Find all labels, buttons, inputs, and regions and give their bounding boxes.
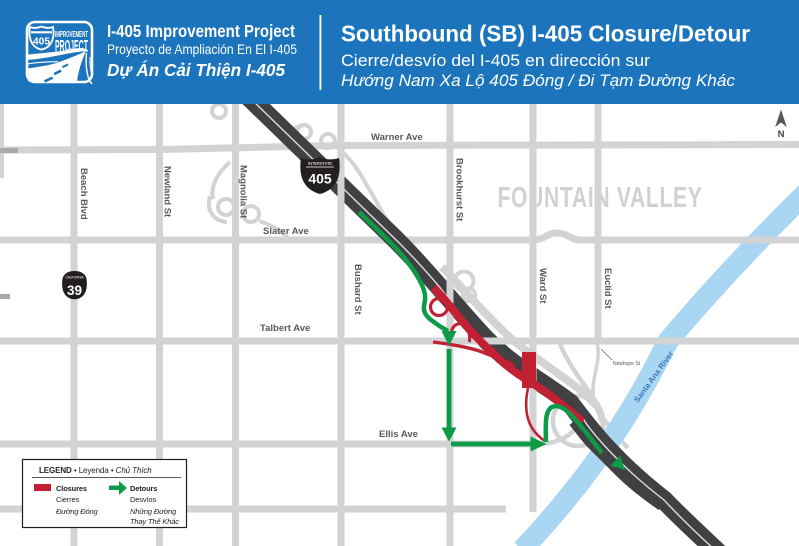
svg-text:Bushard St: Bushard St bbox=[352, 264, 363, 316]
svg-text:LEGEND • Leyenda • Chủ Thích: LEGEND • Leyenda • Chủ Thích bbox=[39, 466, 152, 475]
svg-text:Ellis Ave: Ellis Ave bbox=[379, 429, 418, 440]
svg-text:Newland St: Newland St bbox=[162, 166, 173, 218]
svg-text:Warner Ave: Warner Ave bbox=[371, 132, 423, 143]
svg-text:Ward St: Ward St bbox=[537, 268, 548, 304]
svg-text:Proyecto de Ampliación En El I: Proyecto de Ampliación En El I-405 bbox=[107, 41, 297, 57]
svg-text:Brookhurst St: Brookhurst St bbox=[454, 158, 465, 222]
svg-text:Closures: Closures bbox=[56, 484, 87, 493]
svg-text:Newhope St: Newhope St bbox=[613, 361, 640, 367]
svg-text:I-405 Improvement Project: I-405 Improvement Project bbox=[107, 21, 295, 41]
svg-text:Slater Ave: Slater Ave bbox=[263, 226, 309, 237]
svg-text:Dự Án Cải Thiện I-405: Dự Án Cải Thiện I-405 bbox=[107, 59, 285, 80]
svg-text:405: 405 bbox=[33, 36, 50, 48]
svg-text:Đường Đóng: Đường Đóng bbox=[56, 507, 99, 516]
svg-text:39: 39 bbox=[67, 283, 82, 298]
svg-text:Cierres: Cierres bbox=[56, 495, 80, 504]
svg-text:PROJECT: PROJECT bbox=[55, 38, 88, 56]
svg-text:Desvíos: Desvíos bbox=[130, 495, 156, 504]
svg-text:Những Đường: Những Đường bbox=[130, 507, 177, 516]
svg-text:Euclid St: Euclid St bbox=[602, 268, 613, 309]
svg-text:Southbound (SB) I-405 Closure/: Southbound (SB) I-405 Closure/Detour bbox=[341, 21, 750, 47]
svg-text:Hướng Nam Xa Lộ 405 Đóng / Đi: Hướng Nam Xa Lộ 405 Đóng / Đi Tạm Đường … bbox=[341, 71, 735, 90]
svg-text:Detours: Detours bbox=[130, 484, 157, 493]
svg-text:405: 405 bbox=[308, 171, 332, 187]
svg-text:Cierre/desvío del I-405 en dir: Cierre/desvío del I-405 en dirección sur bbox=[341, 51, 650, 70]
svg-text:Thay Thế Khác: Thay Thế Khác bbox=[130, 517, 179, 526]
svg-text:CALIFORNIA: CALIFORNIA bbox=[66, 276, 84, 280]
svg-text:N: N bbox=[778, 129, 785, 140]
svg-text:Magnolia St: Magnolia St bbox=[238, 165, 249, 219]
svg-text:Talbert Ave: Talbert Ave bbox=[260, 323, 310, 334]
svg-text:INTERSTATE: INTERSTATE bbox=[308, 161, 332, 166]
svg-text:Beach Blvd: Beach Blvd bbox=[78, 168, 89, 220]
